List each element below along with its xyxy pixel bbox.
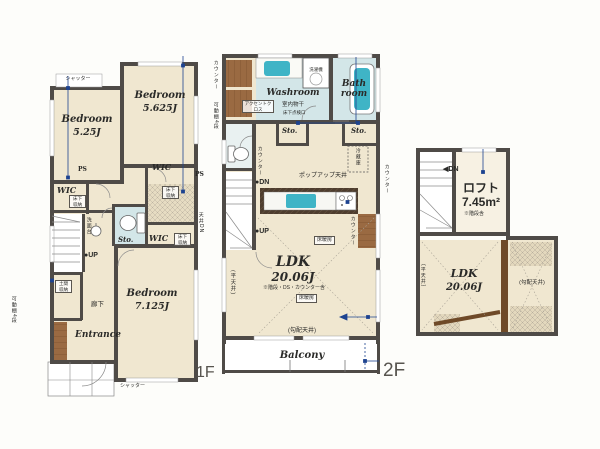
ldk-2f-size: 20.06J: [255, 271, 331, 285]
hallway-label: 廊下: [91, 301, 104, 308]
underfloor-storage-2: 床下収納: [162, 186, 179, 199]
stairs-dn-2f-label: ●DN: [255, 179, 269, 187]
ldk-2f-name: LDK: [255, 254, 331, 270]
loft-note: ※階段含: [464, 212, 484, 218]
storage-2f-right-label: Sto.: [351, 127, 366, 135]
washroom-label: Washroom: [256, 88, 330, 98]
bedroom2-size: 5.625J: [126, 104, 194, 115]
floor-heating-2-label: 床暖房: [296, 294, 317, 303]
stairs-dn-loft-label: ◀DN: [443, 166, 459, 174]
bedroom1-size: 5.25J: [54, 128, 120, 139]
kitchen-island: [260, 188, 358, 214]
doma-storage-label: 土間収納: [55, 280, 72, 293]
stairs-up-1f-label: ●UP: [84, 252, 98, 260]
ps-left-label: PS: [78, 167, 87, 174]
underfloor-storage-3: 床下収納: [174, 233, 191, 246]
bathroom-label: Bath room: [333, 80, 375, 100]
loft-windows: [462, 148, 496, 152]
floor1-title: 1F: [196, 364, 215, 382]
counter-kitchen-label: カウンター: [349, 216, 355, 246]
ldk-loft-name: LDK: [432, 268, 496, 281]
bedroom3-size: 7.125J: [116, 302, 188, 313]
shelf-note-1f: 可動棚4段: [10, 296, 16, 324]
floor-heating-1-label: 床暖房: [314, 236, 335, 245]
sloped-ceiling-loft-label: (勾配天井): [509, 280, 555, 286]
accent-cloth-label: アクセントクロス: [242, 100, 274, 113]
storage-2f-left-label: Sto.: [282, 127, 297, 135]
entrance-label: Entrance: [70, 330, 126, 340]
bedroom3-name: Bedroom: [116, 288, 188, 300]
underfloor-storage-1: 床下収納: [69, 195, 86, 208]
storage-1f-label: Sto.: [118, 236, 133, 244]
ldk-note: ※階段・DS・カウンター含: [252, 286, 336, 292]
balcony-label: Balcony: [262, 350, 342, 362]
wic-mid-label: WIC: [149, 234, 168, 243]
bedroom1-name: Bedroom: [54, 114, 120, 126]
washing-machine: [303, 58, 329, 88]
ldk-loft-size: 20.06J: [432, 282, 496, 294]
shutter-top-label: シャッター: [57, 77, 99, 83]
washroom-counter: [256, 58, 302, 78]
indoor-drying-label: 室内物干: [282, 102, 304, 108]
flat-ceiling-loft-label: (平天井): [419, 264, 425, 287]
counter-wc-label: カウンター: [256, 146, 262, 176]
popup-ceiling-label: ポップアップ天井: [299, 173, 347, 180]
wic-right-label: WIC: [152, 163, 171, 172]
flat-ceiling-2f-label: (平天井): [229, 270, 235, 295]
floorplan-canvas: シャッター Bedroom 5.25J Bedroom 5.625J PS PS…: [0, 0, 600, 449]
bedroom2-name: Bedroom: [126, 90, 194, 102]
toilet-2f-icon: [228, 146, 249, 162]
stairs-up-2f-label: ●UP: [255, 228, 269, 236]
counter-left-label: カウンター: [212, 60, 218, 90]
fridge-label: 冷蔵庫: [354, 148, 360, 166]
ps-right-label: PS: [195, 172, 204, 179]
floor2-title: 2F: [383, 360, 405, 382]
counter-right-label: カウンター: [383, 164, 389, 194]
ceiling-dn-note: 天井DN: [197, 212, 203, 233]
loft-name: ロフト: [458, 182, 504, 196]
washer-label: 洗濯機: [303, 67, 329, 72]
washstand-label: 洗面台: [85, 217, 91, 235]
shutter-bottom-label: シャッター: [120, 384, 145, 390]
wic-left-label: WIC: [57, 186, 76, 195]
shelf-note-2f: 可動棚4段: [212, 102, 218, 130]
sloped-ceiling-2f-label: (勾配天井): [288, 328, 316, 335]
floor-hatch-label: 床下点検口: [283, 110, 306, 115]
loft-size: 7.45m²: [456, 196, 506, 210]
loft-floors: [420, 152, 554, 332]
